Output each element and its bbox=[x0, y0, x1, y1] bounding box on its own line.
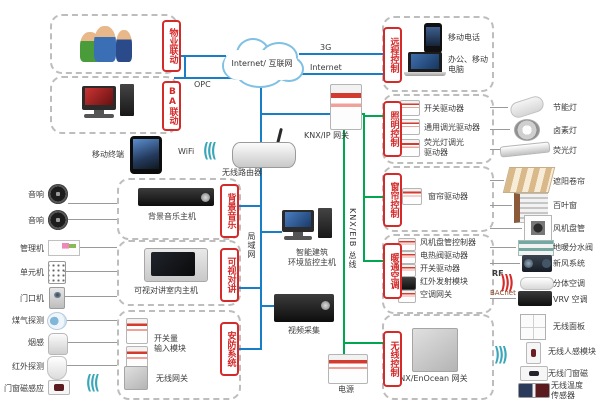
blinds-label: 百叶窗 bbox=[553, 201, 577, 211]
unit-machine-label: 单元机 bbox=[4, 268, 44, 278]
freshair-icon bbox=[522, 255, 552, 272]
mobile-terminal-label: 移动终端 bbox=[92, 150, 124, 160]
input-module-label: 开关量 输入模块 bbox=[154, 334, 186, 353]
smoke-detector-line bbox=[66, 342, 117, 343]
lan-video-line bbox=[262, 305, 274, 307]
wireless-door-magnet-label: 无线门窗磁 bbox=[548, 369, 588, 379]
wireless-panel-icon bbox=[520, 314, 546, 340]
tag-security: 安防系统 bbox=[220, 322, 239, 376]
tag-remote: 远程控制 bbox=[383, 27, 402, 83]
input-module-icon bbox=[126, 318, 148, 344]
security-wireless-gateway-label: 无线网关 bbox=[156, 374, 188, 384]
awning-line bbox=[490, 180, 504, 181]
g3-label: 3G bbox=[320, 43, 331, 53]
knx-ip-gateway-icon bbox=[330, 84, 362, 130]
tag-music: 背景音乐 bbox=[220, 184, 239, 238]
enocean-gateway-label: KNX/EnOcean 网关 bbox=[394, 374, 468, 384]
fancoil-label: 风机盘管 bbox=[553, 224, 585, 234]
ba-computer-icon bbox=[82, 84, 138, 124]
internet-label: Internet bbox=[310, 63, 342, 73]
mobile-phone-icon bbox=[424, 23, 442, 53]
door-station-icon bbox=[49, 287, 65, 309]
lan-intercom-line bbox=[237, 287, 261, 289]
cfl-lamp-label: 节能灯 bbox=[553, 103, 577, 113]
security-wireless-gateway-icon bbox=[124, 366, 148, 390]
pir-detector-label: 红外探测 bbox=[4, 362, 44, 372]
pir-detector-icon bbox=[47, 356, 67, 380]
fancoil-line bbox=[490, 228, 522, 229]
vrv-icon bbox=[518, 291, 552, 306]
smoke-detector-label: 烟感 bbox=[4, 338, 44, 348]
freshair-line bbox=[490, 263, 520, 264]
wireless-panel-label: 无线面板 bbox=[553, 322, 585, 332]
halogen-lamp-icon bbox=[514, 119, 540, 141]
fluorescent-lamp-label: 荧光灯 bbox=[553, 146, 577, 156]
enocean-gateway-icon bbox=[412, 328, 458, 372]
music-host-label: 背景音乐主机 bbox=[148, 212, 196, 222]
video-capture-icon bbox=[274, 294, 334, 322]
opc-label: OPC bbox=[194, 80, 211, 90]
blinds-line bbox=[490, 205, 512, 206]
gas-detector-line bbox=[65, 320, 117, 321]
smoke-detector-icon bbox=[48, 333, 68, 355]
power-supply-icon bbox=[328, 354, 368, 384]
internet-cloud: Internet/ 互联网 bbox=[222, 38, 302, 86]
fancoil-icon bbox=[524, 215, 552, 241]
gas-detector-label: 煤气探测 bbox=[4, 316, 44, 326]
tag-wireless: 无线控制 bbox=[383, 331, 402, 387]
cfl-line bbox=[490, 107, 508, 108]
wireless-pir-label: 无线人感模块 bbox=[548, 347, 596, 357]
router-gateway-line bbox=[262, 113, 330, 115]
tag-curtain: 窗帘控制 bbox=[383, 173, 402, 227]
wireless-router-icon bbox=[232, 142, 296, 168]
speaker-label-2: 音响 bbox=[4, 216, 44, 226]
speaker-line-1 bbox=[68, 203, 117, 204]
smart-home-knx-diagram: 物业联动 BA联动 远程控制 背景音乐 可视对讲 安防系统 照明控制 窗帘控制 … bbox=[0, 0, 600, 400]
vrv-label: VRV 空调 bbox=[553, 295, 588, 305]
tag-ba: BA联动 bbox=[162, 81, 181, 131]
people-icon bbox=[76, 22, 132, 64]
lan-music-line bbox=[237, 205, 261, 207]
internet-cloud-label: Internet/ 互联网 bbox=[222, 58, 302, 69]
bus-curtain-line bbox=[365, 196, 385, 198]
fluorescent-lamp-icon bbox=[500, 141, 551, 157]
fluorescent-dimmer-icon bbox=[400, 139, 420, 157]
freshair-label: 新风系统 bbox=[553, 259, 585, 269]
mobile-phone-label: 移动电话 bbox=[448, 33, 480, 43]
ac-gateway-label: 空调网关 bbox=[420, 290, 452, 300]
wireless-waves-icon: ))) bbox=[494, 344, 506, 367]
ir-emitter-label: 红外发射模块 bbox=[420, 277, 468, 287]
lan-security-line bbox=[237, 348, 261, 350]
internet-line bbox=[299, 73, 383, 75]
tag-lighting: 照明控制 bbox=[383, 101, 402, 157]
tablet-icon bbox=[130, 136, 162, 174]
lan-host-line bbox=[262, 231, 282, 233]
intercom-host-label: 可视对讲室内主机 bbox=[134, 286, 198, 296]
power-supply-label: 电源 bbox=[338, 385, 354, 395]
property-cloud-line bbox=[174, 55, 226, 57]
bus-hvac-line bbox=[365, 260, 385, 262]
manifold-line bbox=[490, 247, 516, 248]
g3-line bbox=[299, 53, 383, 55]
curtain-actuator-icon bbox=[402, 188, 422, 205]
awning-icon bbox=[503, 167, 555, 193]
door-magnet-icon bbox=[48, 380, 70, 395]
wireless-temp-sensor-icon bbox=[518, 383, 550, 398]
wireless-door-magnet-icon bbox=[520, 366, 548, 381]
manager-unit-line bbox=[78, 247, 117, 248]
door-station-line bbox=[63, 296, 117, 297]
awning-label: 遮阳卷帘 bbox=[553, 177, 585, 187]
speaker-line-2 bbox=[68, 219, 117, 220]
knx-bus-line bbox=[343, 128, 345, 354]
left-elbow-line bbox=[184, 55, 186, 79]
tag-property: 物业联动 bbox=[162, 20, 181, 72]
music-host-icon bbox=[138, 188, 214, 206]
halogen-lamp-label: 卤素灯 bbox=[553, 126, 577, 136]
manager-unit-label: 管理机 bbox=[4, 244, 44, 254]
bus-lighting-line bbox=[365, 115, 385, 117]
gas-detector-icon bbox=[47, 312, 67, 330]
fancoil-controller-label: 风机盘管控制器 bbox=[420, 238, 476, 248]
laptop-icon bbox=[404, 52, 446, 78]
universal-dimmer-label: 通用调光驱动器 bbox=[424, 123, 480, 133]
pir-detector-line bbox=[65, 365, 117, 366]
video-capture-label: 视频采集 bbox=[288, 326, 320, 336]
door-magnet-wifi-icon: ((( bbox=[86, 372, 98, 395]
building-monitor-host-icon bbox=[282, 208, 334, 246]
right-bus-line bbox=[363, 113, 365, 262]
halogen-line bbox=[490, 129, 510, 130]
manifold-label: 地暖分水阀 bbox=[553, 243, 593, 253]
fluorescent-dimmer-label: 荧光灯调光 驱动器 bbox=[424, 138, 464, 157]
tag-hvac: 暖通空调 bbox=[383, 243, 402, 299]
manifold-icon bbox=[518, 240, 554, 256]
unit-machine-icon bbox=[48, 261, 66, 284]
bacnet-label: BACnet bbox=[490, 289, 516, 297]
bus-wireless-line bbox=[345, 342, 384, 344]
unit-machine-line bbox=[64, 271, 117, 272]
speaker-icon-1 bbox=[48, 184, 68, 204]
cfl-lamp-icon bbox=[508, 94, 545, 120]
knx-bus-label: KNX/EIB 总线 bbox=[347, 208, 358, 269]
switch-actuator-icon bbox=[400, 100, 420, 116]
speaker-icon-2 bbox=[48, 210, 68, 230]
wireless-pir-icon bbox=[526, 342, 541, 364]
splitac-label: 分体空调 bbox=[553, 279, 585, 289]
wifi-waves-icon: ((( bbox=[203, 140, 215, 163]
manager-unit-icon bbox=[48, 240, 80, 256]
valve-driver-label: 电热阀驱动器 bbox=[420, 251, 468, 261]
intercom-host-icon bbox=[144, 248, 208, 282]
door-station-label: 门口机 bbox=[4, 294, 44, 304]
wireless-router-label: 无线路由器 bbox=[222, 168, 262, 178]
lan-line bbox=[260, 166, 262, 350]
office-computer-label: 办公、移动 电脑 bbox=[448, 55, 488, 74]
wifi-label: WiFi bbox=[178, 147, 194, 157]
universal-dimmer-icon bbox=[400, 119, 420, 135]
knx-ip-gateway-label: KNX/IP 网关 bbox=[304, 131, 349, 141]
switch-actuator-label: 开关驱动器 bbox=[424, 104, 464, 114]
building-monitor-host-label: 智能建筑 环境监控主机 bbox=[284, 248, 340, 267]
lan-label: 局域网 bbox=[246, 232, 257, 259]
wireless-temp-sensor-label: 无线温度 传感器 bbox=[551, 381, 583, 400]
tag-intercom: 可视对讲 bbox=[220, 248, 239, 302]
speaker-label-1: 音响 bbox=[4, 190, 44, 200]
vrv-line bbox=[490, 298, 516, 299]
door-magnet-label: 门窗磁感应 bbox=[0, 384, 44, 394]
curtain-actuator-label: 窗帘驱动器 bbox=[428, 192, 468, 202]
hvac-switch-actuator-label: 开关驱动器 bbox=[420, 264, 460, 274]
splitac-icon bbox=[520, 277, 554, 290]
